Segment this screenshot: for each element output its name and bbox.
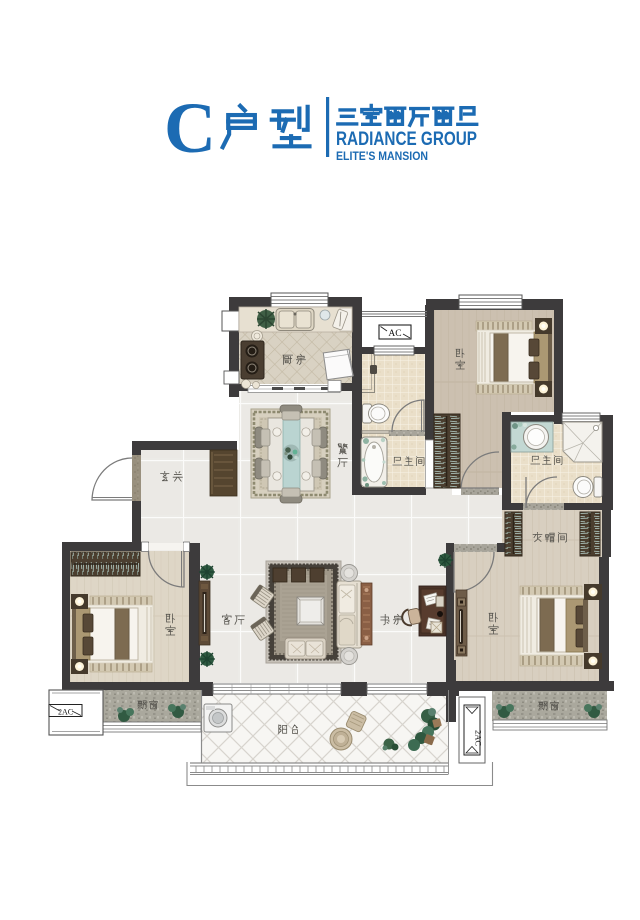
svg-text:RADIANCE GROUP: RADIANCE GROUP — [336, 129, 477, 150]
svg-text:2AC: 2AC — [58, 708, 73, 717]
svg-text:2AC: 2AC — [474, 730, 484, 746]
svg-text:C: C — [164, 88, 216, 168]
svg-text:ELITE'S MANSION: ELITE'S MANSION — [336, 149, 428, 163]
svg-text:AC: AC — [388, 329, 401, 339]
